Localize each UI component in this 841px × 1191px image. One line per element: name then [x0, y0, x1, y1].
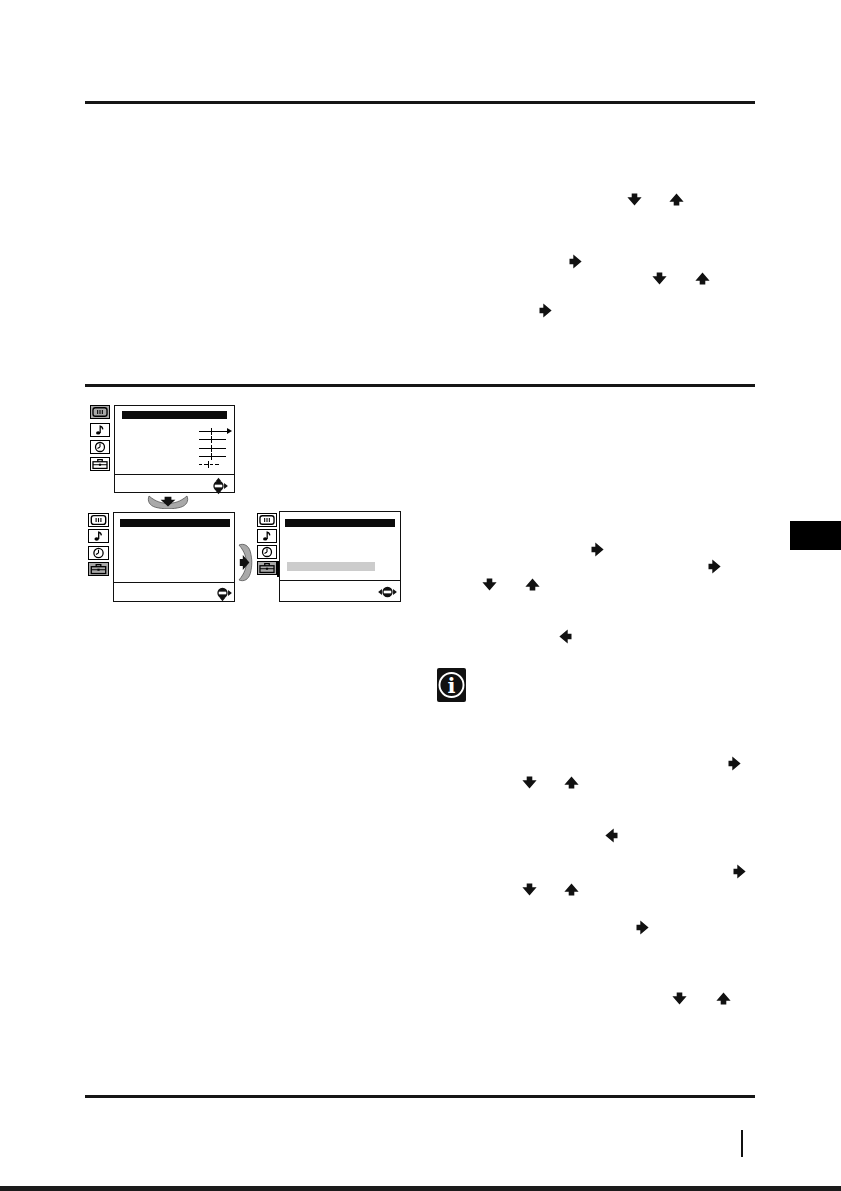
info-icon-glyph: i [448, 673, 456, 698]
up-arrow-icon [564, 883, 579, 896]
joystick-icon [212, 584, 233, 602]
setup-menu-icon [88, 562, 109, 576]
bottom-rule [85, 1095, 755, 1098]
timer-menu-icon [257, 545, 277, 559]
picture-menu-icon [90, 405, 110, 419]
right-arrow-icon [708, 559, 721, 574]
menu-screen [279, 511, 401, 602]
up-arrow-icon [669, 193, 684, 206]
selected-item-bar [287, 562, 375, 571]
menu-screen [114, 405, 235, 493]
menu-screen [113, 512, 235, 602]
setup-menu-icon [257, 561, 277, 575]
menu-title-bar [285, 519, 395, 527]
sound-menu-icon [90, 423, 110, 437]
down-arrow-icon [672, 992, 687, 1005]
menu-footer-divider [115, 474, 234, 475]
picture-menu-icon [88, 513, 109, 527]
section-divider-rule [85, 384, 755, 387]
left-arrow-icon [605, 828, 618, 843]
right-arrow-icon [728, 756, 741, 771]
joystick-press-down-button [147, 494, 189, 509]
right-arrow-icon [539, 303, 552, 318]
menu-icon-strip [256, 511, 280, 603]
info-icon: i [437, 668, 466, 702]
right-arrow-icon [591, 542, 604, 557]
joystick-icon [208, 477, 229, 495]
joystick-icon [377, 583, 398, 601]
down-arrow-icon [627, 193, 642, 206]
up-arrow-icon [564, 776, 579, 789]
page-bottom-edge [0, 1186, 841, 1191]
sound-menu-icon [88, 529, 109, 543]
timer-menu-icon [90, 440, 110, 454]
chapter-tab-marker [790, 521, 841, 550]
timer-menu-icon [88, 546, 109, 560]
right-arrow-icon [569, 254, 582, 269]
picture-menu-icon [257, 513, 277, 527]
menu-icon-strip [88, 511, 112, 603]
left-arrow-icon [559, 629, 572, 644]
right-arrow-icon [733, 864, 746, 879]
down-arrow-icon [482, 578, 497, 591]
osd-menu-setup-item-selected [256, 511, 402, 603]
up-arrow-icon [695, 272, 710, 285]
setup-menu-icon [90, 457, 110, 471]
down-arrow-icon [522, 776, 537, 789]
top-rule [85, 101, 755, 104]
menu-icon-strip [89, 403, 113, 493]
down-arrow-icon [652, 272, 667, 285]
down-arrow-icon [522, 883, 537, 896]
menu-title-bar [120, 519, 230, 527]
osd-menu-picture-adjust [89, 403, 237, 493]
up-arrow-icon [716, 992, 731, 1005]
right-arrow-icon [636, 920, 649, 935]
manual-page: i [0, 0, 841, 1191]
up-arrow-icon [525, 578, 540, 591]
osd-menu-setup [88, 511, 236, 603]
page-number-mark [741, 1130, 743, 1157]
joystick-press-right-button [237, 543, 254, 582]
menu-footer-divider [280, 580, 400, 581]
sound-menu-icon [257, 529, 277, 543]
